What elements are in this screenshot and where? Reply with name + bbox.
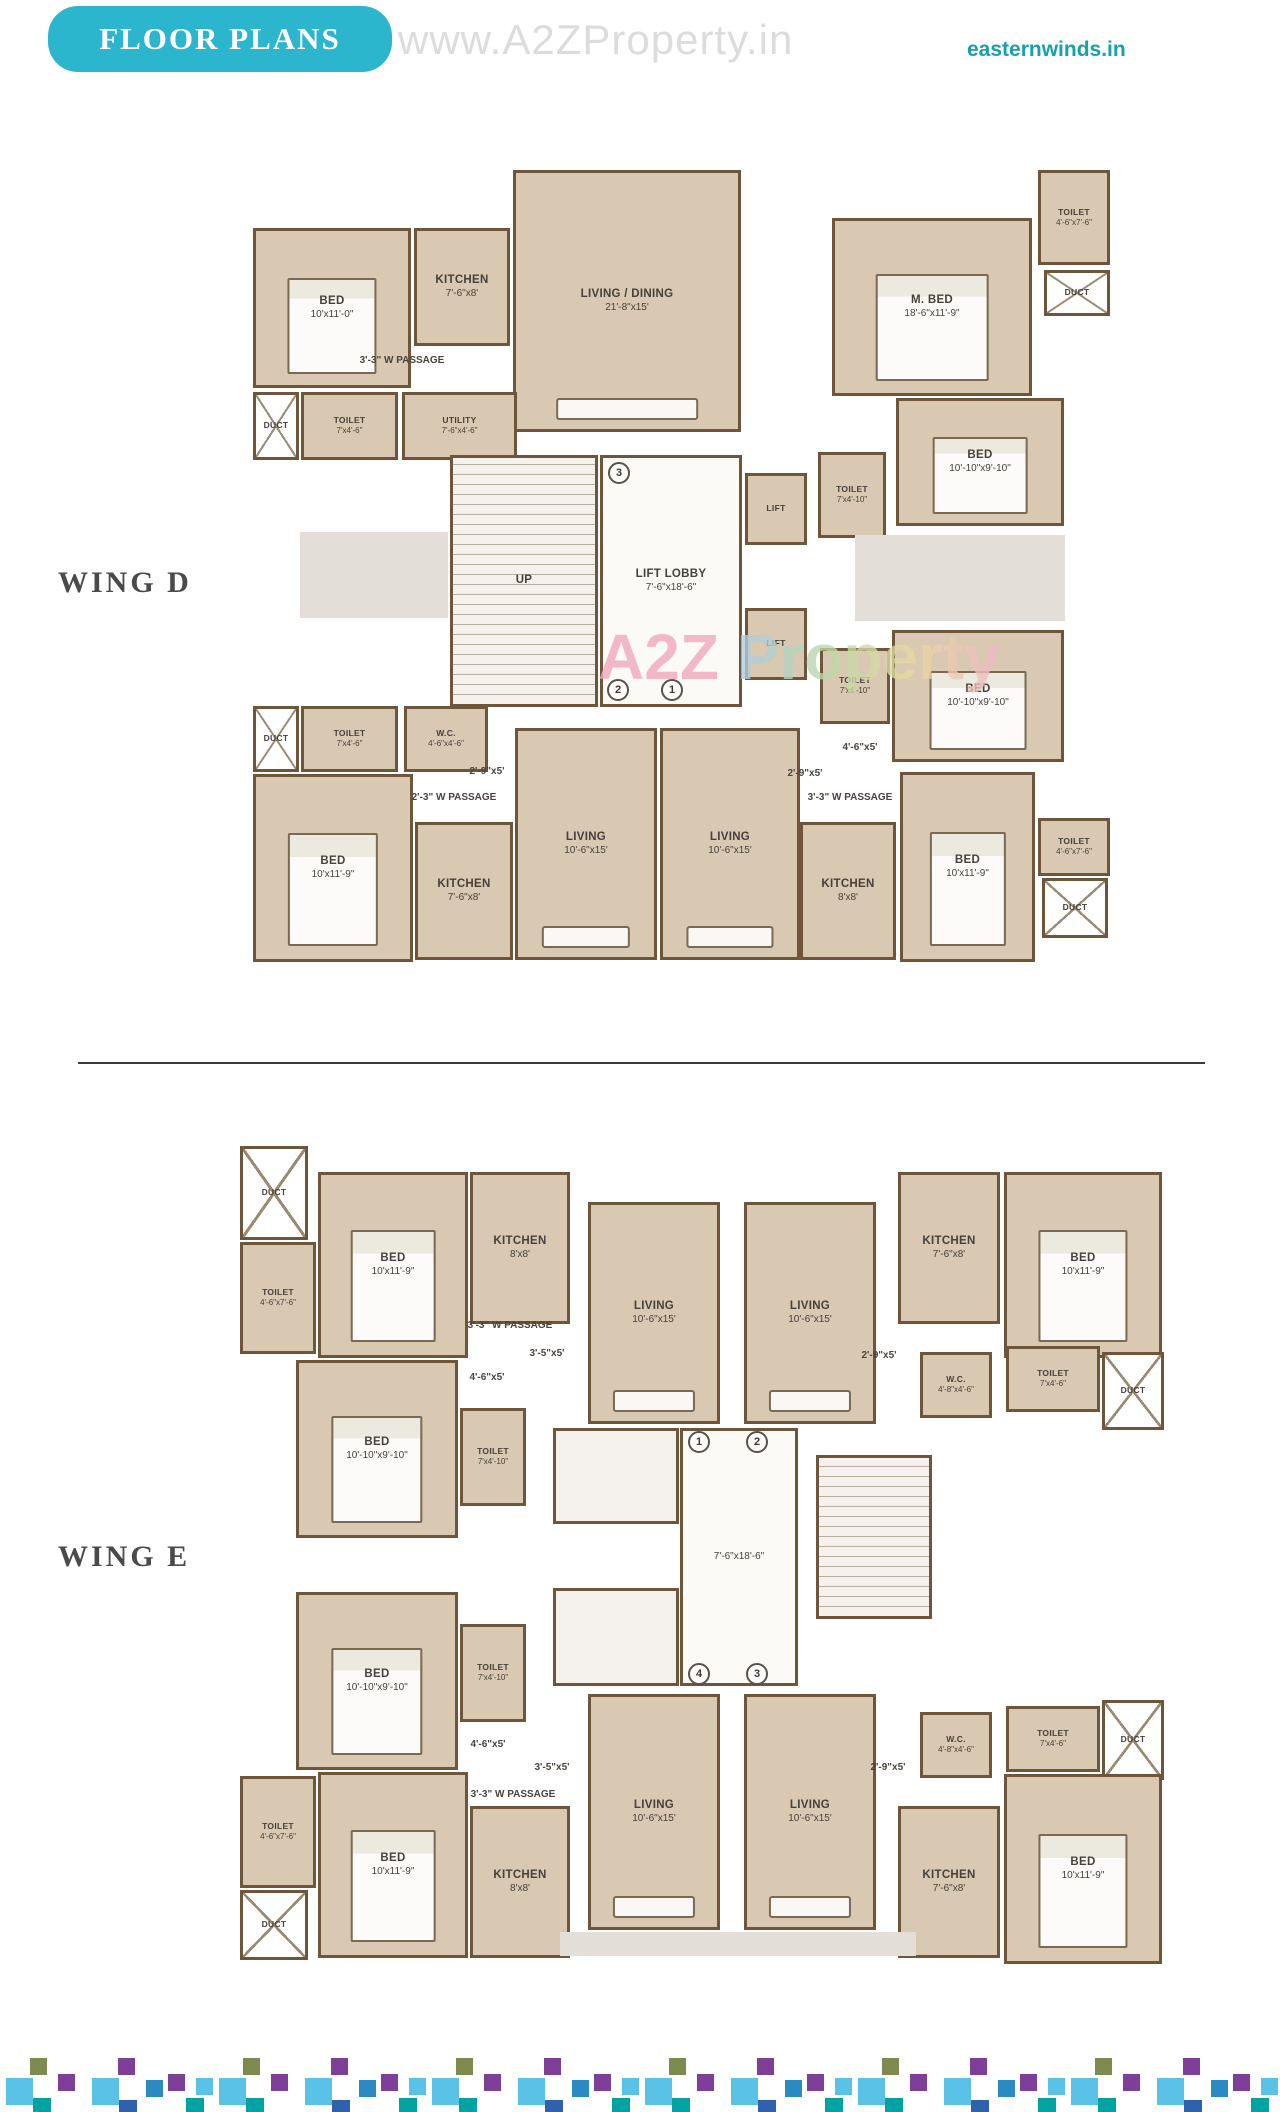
room-living: LIVING10'-6"x15': [660, 728, 800, 960]
room-dims: 7'-6"x8': [448, 892, 480, 904]
room-dims: 4'-6"x4'-6": [428, 739, 464, 749]
room-name: LIVING: [566, 831, 606, 844]
mosaic-cell: [572, 2080, 589, 2097]
mosaic-cell: [544, 2058, 561, 2075]
unit-marker: 1: [688, 1431, 710, 1453]
room-dims: 21'-8"x15': [605, 302, 649, 314]
dim-label: 3'-5"x5': [505, 1346, 589, 1360]
mosaic-cell: [731, 2078, 758, 2105]
room-dims: 8'x8': [838, 892, 858, 904]
room-name: W.C.: [436, 729, 456, 739]
mosaic-cell: [6, 2078, 33, 2105]
room-name: DUCT: [262, 1188, 287, 1198]
mosaic-cell: [545, 2100, 563, 2112]
lift-lobby: 7'-6"x18'-6": [680, 1428, 798, 1686]
room-dims: 4'-8"x4'-6": [938, 1385, 974, 1395]
room-name: BED: [955, 854, 980, 867]
dim-label: 2'-9"x5': [762, 766, 848, 780]
dim-label: 2'-9"x5': [442, 764, 532, 778]
mosaic-cell: [825, 2098, 843, 2112]
room-name: TOILET: [1058, 837, 1090, 847]
unit-marker: 3: [608, 462, 630, 484]
room-lift: LIFT: [745, 608, 807, 680]
room-dims: 10'x11'-9": [372, 1266, 415, 1278]
room-name: UP: [516, 574, 533, 587]
room-name: DUCT: [264, 421, 289, 431]
duct: DUCT: [253, 706, 299, 772]
room-dims: 7'x4'-10": [478, 1673, 508, 1683]
duct: DUCT: [1044, 270, 1110, 316]
room-name: DUCT: [262, 1920, 287, 1930]
mosaic-cell: [399, 2098, 417, 2112]
mosaic-cell: [669, 2058, 686, 2075]
room-name: TOILET: [334, 416, 366, 426]
duct: DUCT: [240, 1890, 308, 1960]
bed-icon: [351, 1230, 436, 1342]
room-dims: 7'x4'-6": [337, 426, 363, 436]
room-w-c: W.C.4'-8"x4'-6": [920, 1352, 992, 1418]
mosaic-cell: [1071, 2078, 1098, 2105]
mosaic-cell: [1095, 2058, 1112, 2075]
room-utility: UTILITY7'-6"x4'-6": [402, 392, 517, 460]
room-name: DUCT: [1121, 1386, 1146, 1396]
mosaic-cell: [119, 2100, 137, 2112]
mosaic-cell: [186, 2098, 204, 2112]
sofa-icon: [686, 926, 773, 948]
mosaic-cell: [1098, 2098, 1116, 2112]
mosaic-cell: [359, 2080, 376, 2097]
mosaic-cell: [1123, 2074, 1140, 2091]
unit-marker: 3: [746, 1663, 768, 1685]
walkway: [300, 532, 448, 618]
wing-d-label: WING D: [58, 566, 192, 600]
room-name: TOILET: [1037, 1369, 1069, 1379]
room-dims: 10'x11'-9": [372, 1866, 415, 1878]
mosaic-cell: [998, 2080, 1015, 2097]
room-name: KITCHEN: [435, 274, 488, 287]
mosaic-cell: [146, 2080, 163, 2097]
room-name: KITCHEN: [493, 1869, 546, 1882]
mosaic-cell: [1183, 2058, 1200, 2075]
room-toilet: TOILET7'x4'-10": [818, 452, 886, 538]
dim-label: 3'-3" W PASSAGE: [433, 1787, 593, 1801]
bed-icon: [331, 1416, 422, 1523]
mosaic-cell: [807, 2074, 824, 2091]
mosaic-cell: [92, 2078, 119, 2105]
dim-label: 3'-3" W PASSAGE: [775, 790, 925, 804]
room-dims: 7'-6"x18'-6": [646, 582, 696, 594]
mosaic-cell: [219, 2078, 246, 2105]
bed-icon: [351, 1830, 436, 1942]
lift-lobby: LIFT LOBBY7'-6"x18'-6": [600, 455, 742, 707]
room-name: BED: [380, 1252, 405, 1265]
room-dims: 7'x4'-6": [1040, 1739, 1066, 1749]
room-dims: 4'-6"x7'-6": [260, 1832, 296, 1842]
room-dims: 7'-6"x4'-6": [442, 426, 478, 436]
room-name: DUCT: [1065, 288, 1090, 298]
staircase: UP: [450, 455, 598, 707]
room-toilet: TOILET7'x4'-6": [1006, 1346, 1100, 1412]
mosaic-cell: [1261, 2078, 1278, 2095]
mosaic-cell: [381, 2074, 398, 2091]
room-name: TOILET: [262, 1822, 294, 1832]
mosaic-cell: [594, 2074, 611, 2091]
sofa-icon: [613, 1896, 695, 1918]
dim-label: 4'-6"x5': [443, 1737, 533, 1751]
room-dims: 18'-6"x11'-9": [904, 308, 959, 320]
room-kitchen: KITCHEN8'x8': [800, 822, 896, 960]
mosaic-cell: [459, 2098, 477, 2112]
room-living: LIVING10'-6"x15': [744, 1202, 876, 1424]
room-dims: 10'-6"x15': [632, 1813, 676, 1825]
walkway: [855, 535, 1065, 621]
room-dims: 10'-6"x15': [708, 845, 752, 857]
room-dims: 10'-6"x15': [564, 845, 608, 857]
mosaic-cell: [944, 2078, 971, 2105]
mosaic-cell: [432, 2078, 459, 2105]
room-name: BED: [967, 449, 992, 462]
room-name: TOILET: [1037, 1729, 1069, 1739]
room-kitchen: KITCHEN8'x8': [470, 1172, 570, 1324]
room-name: BED: [364, 1668, 389, 1681]
lift-shaft: [553, 1428, 679, 1524]
mosaic-cell: [697, 2074, 714, 2091]
room-living: LIVING10'-6"x15': [515, 728, 657, 960]
mosaic-cell: [332, 2100, 350, 2112]
room-dims: 4'-6"x7'-6": [1056, 847, 1092, 857]
room-dims: 10'-6"x15': [788, 1813, 832, 1825]
room-name: KITCHEN: [493, 1235, 546, 1248]
mosaic-cell: [1251, 2098, 1269, 2112]
mosaic-cell: [1157, 2078, 1184, 2105]
room-name: TOILET: [1058, 208, 1090, 218]
bed-icon: [1038, 1834, 1127, 1948]
mosaic-cell: [1048, 2078, 1065, 2095]
page: FLOOR PLANS www.A2ZProperty.in easternwi…: [0, 0, 1280, 2112]
banner-title: FLOOR PLANS: [99, 21, 341, 57]
room-name: DUCT: [1063, 903, 1088, 913]
room-dims: 10'x11'-9": [1062, 1266, 1105, 1278]
room-name: BED: [1070, 1252, 1095, 1265]
room-name: LIVING / DINING: [581, 288, 674, 301]
dim-label: 3'-5"x5': [510, 1760, 594, 1774]
mosaic-cell: [331, 2058, 348, 2075]
mosaic-cell: [305, 2078, 332, 2105]
mosaic-cell: [33, 2098, 51, 2112]
mosaic-cell: [1038, 2098, 1056, 2112]
room-dims: 7'x4'-10": [837, 495, 867, 505]
mosaic-cell: [271, 2074, 288, 2091]
mosaic-cell: [1020, 2074, 1037, 2091]
unit-marker: 2: [607, 679, 629, 701]
mosaic-cell: [243, 2058, 260, 2075]
room-kitchen: KITCHEN7'-6"x8': [898, 1172, 1000, 1324]
room-name: LIFT LOBBY: [636, 568, 707, 581]
bed-icon: [876, 274, 989, 381]
room-name: TOILET: [334, 729, 366, 739]
room-name: M. BED: [911, 294, 953, 307]
room-name: UTILITY: [442, 416, 476, 426]
room-toilet: TOILET4'-6"x7'-6": [240, 1776, 316, 1888]
floor-plans-banner: FLOOR PLANS: [48, 6, 392, 72]
room-living: LIVING10'-6"x15': [588, 1202, 720, 1424]
mosaic-cell: [882, 2058, 899, 2075]
room-name: LIVING: [710, 831, 750, 844]
room-living: LIVING10'-6"x15': [744, 1694, 876, 1930]
room-name: TOILET: [836, 485, 868, 495]
section-divider: [78, 1062, 1205, 1064]
room-dims: 10'-10"x9'-10": [346, 1682, 408, 1694]
mosaic-cell: [409, 2078, 426, 2095]
walkway: [560, 1932, 916, 1956]
mosaic-cell: [785, 2080, 802, 2097]
room-kitchen: KITCHEN8'x8': [470, 1806, 570, 1958]
room-dims: 4'-6"x7'-6": [1056, 218, 1092, 228]
room-bed: BED10'-10"x9'-10": [896, 398, 1064, 526]
room-bed: BED10'x11'-9": [1004, 1172, 1162, 1358]
room-name: TOILET: [477, 1447, 509, 1457]
room-dims: 10'-6"x15': [788, 1314, 832, 1326]
mosaic-cell: [971, 2100, 989, 2112]
mosaic-cell: [672, 2098, 690, 2112]
mosaic-cell: [645, 2078, 672, 2105]
mosaic-cell: [612, 2098, 630, 2112]
room-dims: 7'x4'-10": [840, 686, 870, 696]
duct: DUCT: [1102, 1700, 1164, 1780]
dim-label: 2'-9"x5': [845, 1760, 931, 1774]
room-name: LIVING: [634, 1799, 674, 1812]
room-dims: 7'-6"x8': [933, 1249, 965, 1261]
mosaic-cell: [518, 2078, 545, 2105]
room-dims: 7'-6"x8': [446, 288, 478, 300]
room-dims: 7'-6"x18'-6": [714, 1551, 764, 1563]
room-bed: BED10'-10"x9'-10": [296, 1360, 458, 1538]
room-toilet: TOILET4'-6"x7'-6": [240, 1242, 316, 1354]
room-dims: 7'x4'-6": [337, 739, 363, 749]
room-bed: BED10'-10"x9'-10": [892, 630, 1064, 762]
room-dims: 8'x8': [510, 1883, 530, 1895]
room-name: TOILET: [839, 676, 871, 686]
staircase: [816, 1455, 932, 1619]
mosaic-cell: [58, 2074, 75, 2091]
room-kitchen: KITCHEN7'-6"x8': [415, 822, 513, 960]
duct: DUCT: [240, 1146, 308, 1240]
mosaic-cell: [622, 2078, 639, 2095]
room-name: KITCHEN: [922, 1869, 975, 1882]
room-dims: 10'-10"x9'-10": [949, 463, 1011, 475]
room-dims: 10'x11'-9": [1062, 1870, 1105, 1882]
bed-icon: [288, 833, 378, 946]
room-name: LIVING: [790, 1300, 830, 1313]
sofa-icon: [769, 1390, 851, 1412]
unit-marker: 2: [746, 1431, 768, 1453]
wing-e-label: WING E: [58, 1540, 190, 1574]
room-dims: 10'x11'-9": [946, 868, 989, 880]
room-dims: 10'-6"x15': [632, 1314, 676, 1326]
mosaic-cell: [1184, 2100, 1202, 2112]
room-bed: BED10'x11'-9": [1004, 1774, 1162, 1964]
room-bed: BED10'-10"x9'-10": [296, 1592, 458, 1770]
room-dims: 8'x8': [510, 1249, 530, 1261]
mosaic-cell: [835, 2078, 852, 2095]
dim-label: 4'-6"x5': [815, 740, 905, 754]
dim-label: 2'-9"x5': [836, 1348, 922, 1362]
watermark-url: www.A2ZProperty.in: [398, 16, 793, 64]
mosaic-cell: [196, 2078, 213, 2095]
room-dims: 7'-6"x8': [933, 1883, 965, 1895]
room-dims: 10'x11'-0": [311, 309, 354, 321]
room-toilet: TOILET7'x4'-10": [820, 648, 890, 724]
room-dims: 7'x4'-6": [1040, 1379, 1066, 1389]
mosaic-cell: [910, 2074, 927, 2091]
room-dims: 10'-10"x9'-10": [346, 1450, 408, 1462]
room-name: LIFT: [766, 504, 785, 514]
duct: DUCT: [1042, 878, 1108, 938]
mosaic-cell: [970, 2058, 987, 2075]
mosaic-cell: [885, 2098, 903, 2112]
room-dims: 4'-8"x4'-6": [938, 1745, 974, 1755]
room-name: DUCT: [1121, 1735, 1146, 1745]
duct: DUCT: [253, 392, 299, 460]
dim-label: 3'-3" W PASSAGE: [322, 352, 482, 368]
mosaic-cell: [858, 2078, 885, 2105]
mosaic-cell: [484, 2074, 501, 2091]
room-toilet: TOILET4'-6"x7'-6": [1038, 818, 1110, 876]
bed-icon: [929, 832, 1005, 946]
mosaic-cell: [1211, 2080, 1228, 2097]
dim-label: 2'-3" W PASSAGE: [380, 790, 528, 804]
mosaic-cell: [246, 2098, 264, 2112]
bed-icon: [1038, 1230, 1127, 1342]
lift-shaft: [553, 1588, 679, 1686]
room-name: LIFT: [766, 639, 785, 649]
sofa-icon: [613, 1390, 695, 1412]
room-name: W.C.: [946, 1375, 966, 1385]
sofa-icon: [769, 1896, 851, 1918]
mosaic-cell: [758, 2100, 776, 2112]
mosaic-cell: [30, 2058, 47, 2075]
room-name: TOILET: [262, 1288, 294, 1298]
dim-label: 3'-3" W PASSAGE: [430, 1318, 590, 1332]
room-kitchen: KITCHEN7'-6"x8': [414, 228, 510, 346]
sofa-icon: [556, 398, 698, 420]
sofa-icon: [542, 926, 630, 948]
mosaic-cell: [118, 2058, 135, 2075]
site-link[interactable]: easternwinds.in: [967, 38, 1126, 62]
room-living: LIVING10'-6"x15': [588, 1694, 720, 1930]
mosaic-cell: [168, 2074, 185, 2091]
mosaic-cell: [456, 2058, 473, 2075]
room-name: KITCHEN: [821, 878, 874, 891]
room-name: W.C.: [946, 1735, 966, 1745]
dim-label: 4'-6"x5': [442, 1370, 532, 1384]
room-toilet: TOILET7'x4'-10": [460, 1408, 526, 1506]
unit-marker: 4: [688, 1663, 710, 1685]
room-name: LIVING: [790, 1799, 830, 1812]
room-w-c: W.C.4'-6"x4'-6": [404, 706, 488, 772]
room-dims: 10'-10"x9'-10": [947, 697, 1009, 709]
room-living-dining: LIVING / DINING21'-8"x15': [513, 170, 741, 432]
room-name: BED: [319, 295, 344, 308]
room-dims: 10'x11'-9": [312, 869, 355, 881]
room-name: LIVING: [634, 1300, 674, 1313]
room-toilet: TOILET7'x4'-10": [460, 1624, 526, 1722]
room-name: BED: [380, 1852, 405, 1865]
room-toilet: TOILET7'x4'-6": [301, 392, 398, 460]
room-toilet: TOILET4'-6"x7'-6": [1038, 170, 1110, 265]
room-name: DUCT: [264, 734, 289, 744]
unit-marker: 1: [661, 679, 683, 701]
room-name: TOILET: [477, 1663, 509, 1673]
room-name: BED: [364, 1436, 389, 1449]
room-dims: 7'x4'-10": [478, 1457, 508, 1467]
mosaic-cell: [1233, 2074, 1250, 2091]
room-name: BED: [965, 683, 990, 696]
room-name: BED: [320, 855, 345, 868]
room-name: KITCHEN: [922, 1235, 975, 1248]
room-lift: LIFT: [745, 473, 807, 545]
room-toilet: TOILET7'x4'-6": [1006, 1706, 1100, 1772]
room-name: BED: [1070, 1856, 1095, 1869]
room-m-bed: M. BED18'-6"x11'-9": [832, 218, 1032, 396]
mosaic-cell: [757, 2058, 774, 2075]
room-name: KITCHEN: [437, 878, 490, 891]
room-toilet: TOILET7'x4'-6": [301, 706, 398, 772]
duct: DUCT: [1102, 1352, 1164, 1430]
bed-icon: [331, 1648, 422, 1755]
room-dims: 4'-6"x7'-6": [260, 1298, 296, 1308]
